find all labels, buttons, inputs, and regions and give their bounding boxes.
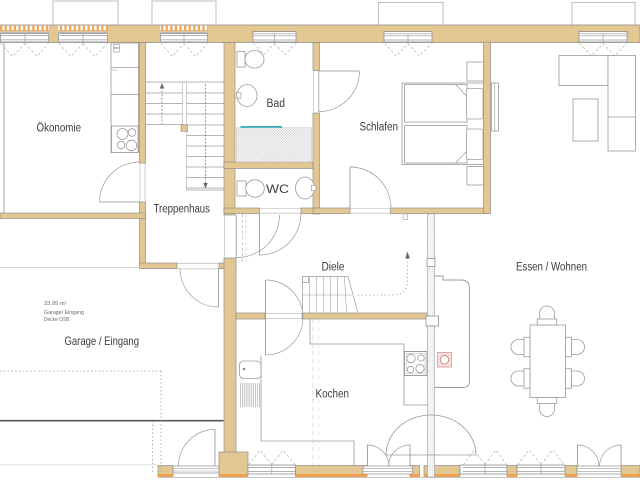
svg-text:Ökonomie: Ökonomie <box>37 123 82 135</box>
svg-text:Decke OSB: Decke OSB <box>44 317 70 323</box>
svg-text:WC: WC <box>266 184 289 196</box>
svg-text:Diele: Diele <box>322 262 345 274</box>
svg-text:Kochen: Kochen <box>316 389 350 401</box>
svg-text:Garage/ Eingang: Garage/ Eingang <box>44 310 84 316</box>
svg-text:Bad: Bad <box>267 98 286 110</box>
svg-text:33.95 m²: 33.95 m² <box>44 301 67 307</box>
svg-text:Treppenhaus: Treppenhaus <box>154 204 211 216</box>
svg-text:Essen / Wohnen: Essen / Wohnen <box>516 262 587 274</box>
svg-text:Schlafen: Schlafen <box>360 122 399 134</box>
svg-text:Garage / Eingang: Garage / Eingang <box>65 334 140 348</box>
